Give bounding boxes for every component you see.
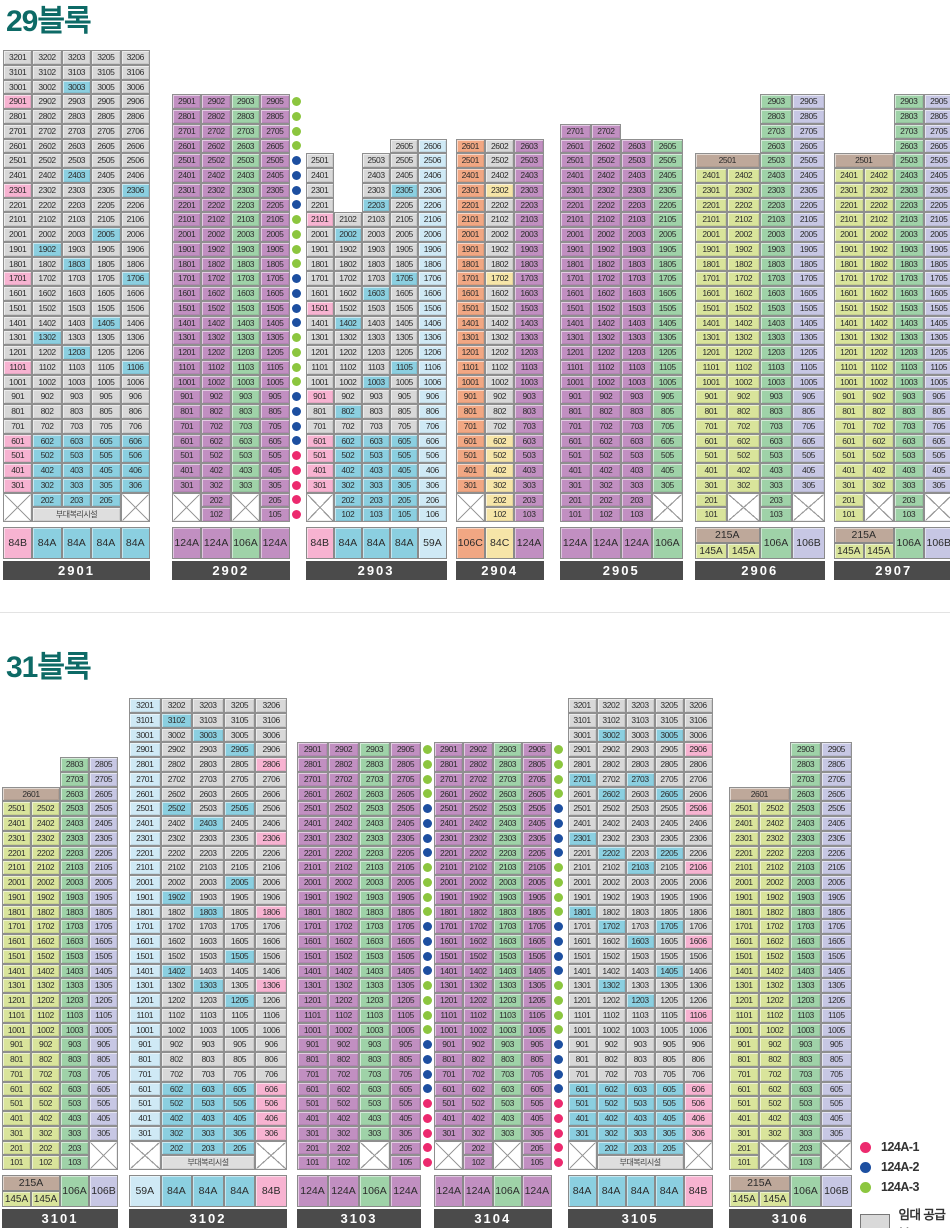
- unit-cell: 1302: [485, 330, 514, 345]
- unit-cell: 2601: [172, 139, 201, 154]
- unit-cell: 1606: [684, 934, 713, 949]
- unit-cell: 1903: [493, 890, 522, 905]
- unit-cell: 2302: [32, 183, 61, 198]
- unit-cell: 905: [260, 389, 289, 404]
- unit-cell: 803: [192, 1052, 224, 1067]
- unit-cell: 1705: [91, 271, 120, 286]
- unit-cell: 2803: [62, 109, 91, 124]
- unit-type-footer: 215A145A145A106A106B: [2, 1175, 118, 1207]
- unit-cell: 1202: [759, 993, 790, 1008]
- unit-cell: 2201: [434, 846, 463, 861]
- unit-cell: 1205: [91, 345, 120, 360]
- unit-cell: 2005: [821, 875, 852, 890]
- unit-variant-dot: [423, 1143, 432, 1152]
- unit-cell: 2003: [621, 227, 652, 242]
- unit-cell: 402: [32, 463, 61, 478]
- unit-cell: 1302: [727, 330, 760, 345]
- unit-cell: 805: [821, 1052, 852, 1067]
- unit-cell: 1102: [32, 360, 61, 375]
- unit-variant-dot: [423, 966, 432, 975]
- dot-cell: [421, 860, 434, 875]
- unit-cell: 2401: [695, 168, 728, 183]
- unit-cell: 603: [790, 1082, 821, 1097]
- unit-cell: 403: [514, 463, 543, 478]
- unit-cell: 2805: [655, 757, 684, 772]
- legend-item-124A-2: 124A-2: [860, 1160, 950, 1174]
- unit-cell: 2605: [652, 139, 683, 154]
- unit-cell: 1505: [91, 301, 120, 316]
- footer-type-cell: 84A: [626, 1175, 655, 1207]
- unit-cell: 805: [224, 1052, 256, 1067]
- unit-cell: 705: [655, 1067, 684, 1082]
- unit-cell: 1703: [231, 271, 260, 286]
- dot-cell: [290, 419, 303, 434]
- footer-type-cell: 124A: [390, 1175, 421, 1207]
- unit-variant-dot: [423, 819, 432, 828]
- unit-cell: 1101: [834, 360, 864, 375]
- unit-cell: 603: [62, 434, 91, 449]
- unit-cell: 1403: [62, 316, 91, 331]
- unit-cell: 2403: [493, 816, 522, 831]
- unit-cell: 901: [297, 1037, 328, 1052]
- unit-cell: 2405: [390, 816, 421, 831]
- unit-cell: 1001: [834, 375, 864, 390]
- unit-cell: 706: [418, 419, 446, 434]
- unit-cell: 701: [560, 419, 591, 434]
- unit-cell: 2305: [260, 183, 289, 198]
- unit-type-footer: 84B84A84A84A59A: [306, 527, 447, 559]
- unit-cell: 1802: [31, 905, 60, 920]
- unit-cell: 1105: [260, 360, 289, 375]
- building-2904: 2601250124012301220121012001190118011701…: [456, 139, 544, 581]
- unit-cell: 1101: [172, 360, 201, 375]
- unit-cell: 1606: [255, 934, 287, 949]
- unit-cell: 101: [2, 1155, 31, 1170]
- unit-cell: 1203: [621, 345, 652, 360]
- unit-variant-dot: [423, 922, 432, 931]
- unit-cell: 2102: [727, 212, 760, 227]
- unit-cell: 1203: [760, 345, 793, 360]
- unit-cell: 1305: [91, 330, 120, 345]
- unit-cell: 1003: [790, 1023, 821, 1038]
- unit-variant-dot: [423, 1099, 432, 1108]
- unit-cell: 803: [62, 404, 91, 419]
- unit-cell: 2603: [894, 139, 924, 154]
- unit-cell: 1406: [255, 964, 287, 979]
- dot-cell: [290, 124, 303, 139]
- unit-cell: 1703: [894, 271, 924, 286]
- unit-cell: 2601: [129, 787, 161, 802]
- unit-cell: 1403: [626, 964, 655, 979]
- unit-cell: 1602: [759, 934, 790, 949]
- unit-cell: 406: [255, 1111, 287, 1126]
- unit-cell: 2203: [62, 198, 91, 213]
- unit-cell: 503: [894, 448, 924, 463]
- unit-cell: 102: [463, 1155, 492, 1170]
- unit-cell: 2801: [297, 757, 328, 772]
- unit-cell: 2105: [655, 860, 684, 875]
- unit-cell: 1805: [390, 905, 421, 920]
- unit-cell: 1101: [3, 360, 32, 375]
- unit-cell: 1605: [821, 934, 852, 949]
- unit-cell: 1301: [3, 330, 32, 345]
- unit-cell: 1105: [792, 360, 825, 375]
- unit-cell: 1501: [2, 949, 31, 964]
- unit-cell: 603: [760, 434, 793, 449]
- footer-type-cell: 124A: [463, 1175, 492, 1207]
- unit-cell: 702: [597, 1067, 626, 1082]
- unit-cell: 2506: [418, 153, 446, 168]
- unit-variant-dot: [423, 907, 432, 916]
- unit-cell: 1701: [568, 919, 597, 934]
- unit-cell: 405: [390, 1111, 421, 1126]
- unit-cell: 2401: [306, 168, 334, 183]
- unit-variant-dot: [554, 804, 563, 813]
- unit-cell: 1103: [60, 1008, 89, 1023]
- unit-cell: 805: [260, 404, 289, 419]
- unit-cell: 2605: [89, 787, 118, 802]
- unit-cell: 1602: [864, 286, 894, 301]
- unit-cell: 1502: [597, 949, 626, 964]
- unit-cell: 1503: [60, 949, 89, 964]
- unit-variant-dot: [423, 1070, 432, 1079]
- building-label: 3104: [434, 1209, 552, 1228]
- unit-cell: 302: [864, 478, 894, 493]
- unit-cell: 302: [485, 478, 514, 493]
- unit-cell: 1102: [485, 360, 514, 375]
- unit-cell: 1103: [192, 1008, 224, 1023]
- unit-cell: 1802: [463, 905, 492, 920]
- unit-cell: 603: [192, 1082, 224, 1097]
- unit-cell: 1205: [652, 345, 683, 360]
- unit-cell: 2501: [560, 153, 591, 168]
- unit-cell: 1701: [3, 271, 32, 286]
- dot-cell: [552, 846, 565, 861]
- unit-cell: 1102: [201, 360, 230, 375]
- unit-cell: 1605: [91, 286, 120, 301]
- unit-cell: 2302: [463, 831, 492, 846]
- unit-cell: 502: [591, 448, 622, 463]
- unit-cell: 603: [362, 434, 390, 449]
- footer-type-cell: 106A: [760, 527, 793, 559]
- unit-cell: 2701: [297, 772, 328, 787]
- unit-cell: 3205: [91, 50, 120, 65]
- unit-cell: 1103: [514, 360, 543, 375]
- footer-type-cell: 215A: [729, 1175, 791, 1191]
- unit-cell: 2203: [60, 846, 89, 861]
- unit-cell: 902: [31, 1037, 60, 1052]
- unit-cell: 2203: [359, 846, 390, 861]
- unit-cell: 901: [434, 1037, 463, 1052]
- unit-cell: 902: [201, 389, 230, 404]
- unit-cell: 2102: [485, 212, 514, 227]
- unit-cell: 1202: [31, 993, 60, 1008]
- unit-cell: 2801: [3, 109, 32, 124]
- unit-cell: 1705: [260, 271, 289, 286]
- unit-cell: 2901: [434, 742, 463, 757]
- unit-cell: 1001: [560, 375, 591, 390]
- unit-cell: 802: [463, 1052, 492, 1067]
- unit-cell: 1501: [297, 949, 328, 964]
- unit-cell: 402: [334, 463, 362, 478]
- unit-cell: 1902: [759, 890, 790, 905]
- unit-cell: 502: [32, 448, 61, 463]
- unit-cell: 501: [172, 448, 201, 463]
- unit-cell: 2105: [260, 212, 289, 227]
- unit-cell: 2301: [729, 831, 760, 846]
- unit-cell: 101: [729, 1155, 760, 1170]
- unit-cell: 602: [328, 1082, 359, 1097]
- unit-cell: 403: [493, 1111, 522, 1126]
- unit-cell: 1603: [359, 934, 390, 949]
- unit-cell: 1301: [297, 978, 328, 993]
- unit-cell: 2305: [91, 183, 120, 198]
- unit-cell: 2001: [2, 875, 31, 890]
- footer-type-cell: 215A: [834, 527, 894, 543]
- unit-cell: 202: [463, 1141, 492, 1156]
- unit-cell: 2901: [568, 742, 597, 757]
- unit-cell: 1403: [514, 316, 543, 331]
- unit-cell: 2501: [297, 801, 328, 816]
- unit-cell: 503: [359, 1096, 390, 1111]
- unit-cell: 302: [334, 478, 362, 493]
- building-2902: 2901280127012601250124012301220121012001…: [172, 94, 303, 580]
- unit-cell: 2401: [434, 816, 463, 831]
- unit-variant-dot: [423, 981, 432, 990]
- unit-cell: 901: [2, 1037, 31, 1052]
- unit-cell: 2703: [60, 772, 89, 787]
- unit-cell: 1102: [759, 1008, 790, 1023]
- unit-cell: 1001: [456, 375, 485, 390]
- unit-cell: 1703: [62, 271, 91, 286]
- unit-cell: 1101: [729, 1008, 760, 1023]
- dot-cell: [290, 183, 303, 198]
- building-label: 3105: [568, 1209, 713, 1228]
- unit-cell: 1802: [334, 257, 362, 272]
- unit-cell: 1805: [91, 257, 120, 272]
- unit-cell: 1801: [3, 257, 32, 272]
- unit-variant-dot: [292, 141, 301, 150]
- unit-cell: 2102: [463, 860, 492, 875]
- unit-cell: 2003: [790, 875, 821, 890]
- unit-cell: 1002: [32, 375, 61, 390]
- unit-cell: 2302: [328, 831, 359, 846]
- unit-cell: 401: [306, 463, 334, 478]
- unit-cell: 902: [334, 389, 362, 404]
- unit-cell: 3203: [62, 50, 91, 65]
- unit-cell: 2703: [790, 772, 821, 787]
- unit-cell: 1602: [201, 286, 230, 301]
- unit-cell: 1803: [790, 905, 821, 920]
- unit-cell: 1302: [591, 330, 622, 345]
- unit-cell: 501: [434, 1096, 463, 1111]
- dot-cell: [421, 905, 434, 920]
- no-unit-x-cell: [652, 493, 683, 523]
- unit-cell: 1605: [655, 934, 684, 949]
- unit-cell: 701: [306, 419, 334, 434]
- unit-cell: 2805: [792, 109, 825, 124]
- unit-variant-dot: [554, 863, 563, 872]
- unit-variant-dot: [292, 186, 301, 195]
- no-unit-x-cell: [172, 493, 201, 523]
- unit-cell: 1201: [568, 993, 597, 1008]
- unit-cell: 1505: [924, 301, 950, 316]
- dot-cell: [552, 1141, 565, 1156]
- unit-cell: 803: [231, 404, 260, 419]
- unit-cell: 1503: [192, 949, 224, 964]
- unit-cell: 203: [192, 1141, 224, 1156]
- unit-cell: 501: [729, 1096, 760, 1111]
- unit-cell: 1206: [121, 345, 150, 360]
- unit-cell: 2001: [297, 875, 328, 890]
- dot-cell: [421, 1082, 434, 1097]
- unit-cell: 305: [260, 478, 289, 493]
- unit-cell: 601: [695, 434, 728, 449]
- building-grid: 2501240123012201210120011901180117011601…: [729, 742, 852, 1170]
- unit-cell: 2605: [522, 787, 551, 802]
- block-29-title: 29블록: [6, 0, 91, 40]
- unit-cell: 2001: [3, 227, 32, 242]
- unit-cell: 1505: [390, 301, 418, 316]
- unit-cell: 1501: [456, 301, 485, 316]
- unit-cell: 505: [390, 448, 418, 463]
- unit-cell: 1605: [924, 286, 950, 301]
- unit-cell: 3102: [161, 713, 193, 728]
- unit-cell: 2503: [62, 153, 91, 168]
- unit-cell: 2502: [597, 801, 626, 816]
- unit-cell: 1002: [727, 375, 760, 390]
- unit-cell: 1605: [652, 286, 683, 301]
- unit-cell: 2905: [91, 94, 120, 109]
- unit-cell: 1903: [514, 242, 543, 257]
- unit-cell: 2603: [493, 787, 522, 802]
- unit-cell: 305: [224, 1126, 256, 1141]
- unit-cell: 2405: [792, 168, 825, 183]
- unit-cell: 2001: [456, 227, 485, 242]
- unit-cell: 2305: [89, 831, 118, 846]
- unit-cell: 2701: [129, 772, 161, 787]
- unit-cell: 106: [418, 507, 446, 522]
- unit-cell: 1705: [390, 919, 421, 934]
- unit-cell: 2202: [31, 846, 60, 861]
- unit-cell: 1803: [231, 257, 260, 272]
- unit-type-footer: 84A84A84A84A84B: [568, 1175, 713, 1207]
- unit-cell: 1702: [334, 271, 362, 286]
- unit-cell: 701: [834, 419, 864, 434]
- unit-cell: 1601: [297, 934, 328, 949]
- unit-cell: 1105: [224, 1008, 256, 1023]
- unit-cell: 2303: [626, 831, 655, 846]
- unit-cell: 3202: [161, 698, 193, 713]
- unit-cell: 803: [359, 1052, 390, 1067]
- unit-cell: 1502: [31, 949, 60, 964]
- dot-cell: [421, 742, 434, 757]
- unit-cell: 2103: [760, 212, 793, 227]
- building-label: 2907: [834, 561, 950, 580]
- unit-cell: 1705: [89, 919, 118, 934]
- unit-cell: 2402: [328, 816, 359, 831]
- unit-cell: 903: [626, 1037, 655, 1052]
- unit-cell: 802: [591, 404, 622, 419]
- unit-cell: 2703: [493, 772, 522, 787]
- unit-cell: 1402: [485, 316, 514, 331]
- unit-cell: 502: [31, 1096, 60, 1111]
- unit-cell: 2603: [514, 139, 543, 154]
- unit-cell: 3101: [129, 713, 161, 728]
- unit-cell: 503: [192, 1096, 224, 1111]
- unit-cell: 1302: [201, 330, 230, 345]
- unit-cell: 601: [129, 1082, 161, 1097]
- unit-cell: 2406: [255, 816, 287, 831]
- unit-cell: 303: [359, 1126, 390, 1141]
- unit-cell: 2701: [172, 124, 201, 139]
- unit-cell: 2905: [260, 94, 289, 109]
- unit-cell: 605: [89, 1082, 118, 1097]
- unit-cell: 2302: [759, 831, 790, 846]
- unit-cell: 2302: [485, 183, 514, 198]
- unit-cell: 903: [60, 1037, 89, 1052]
- footer-type-cell: 145A: [727, 543, 760, 559]
- unit-cell: 601: [434, 1082, 463, 1097]
- unit-cell: 1501: [695, 301, 728, 316]
- unit-cell: 302: [759, 1126, 790, 1141]
- unit-cell: 3103: [62, 65, 91, 80]
- unit-cell: 903: [493, 1037, 522, 1052]
- dot-cell: [552, 1067, 565, 1082]
- unit-cell: 2401: [2, 816, 31, 831]
- dot-cell: [552, 905, 565, 920]
- unit-cell: 2303: [621, 183, 652, 198]
- unit-cell: 705: [522, 1067, 551, 1082]
- unit-cell: 901: [456, 389, 485, 404]
- unit-cell: 2105: [522, 860, 551, 875]
- footer-type-cell: 215A: [695, 527, 760, 543]
- unit-cell: 2303: [493, 831, 522, 846]
- unit-cell: 1603: [514, 286, 543, 301]
- unit-cell: 1201: [172, 345, 201, 360]
- unit-cell: 3002: [161, 728, 193, 743]
- unit-cell: 401: [568, 1111, 597, 1126]
- unit-cell: 2005: [924, 227, 950, 242]
- unit-cell: 2202: [463, 846, 492, 861]
- unit-cell: 503: [790, 1096, 821, 1111]
- unit-cell: 2402: [864, 168, 894, 183]
- unit-cell: 1405: [91, 316, 120, 331]
- unit-cell: 2001: [568, 875, 597, 890]
- unit-cell: 202: [32, 493, 61, 508]
- unit-cell: 1301: [434, 978, 463, 993]
- unit-cell: 506: [684, 1096, 713, 1111]
- unit-cell: 205: [522, 1141, 551, 1156]
- unit-cell: 1905: [821, 890, 852, 905]
- unit-variant-dot: [423, 996, 432, 1005]
- unit-cell: 1101: [434, 1008, 463, 1023]
- unit-cell: 2705: [89, 772, 118, 787]
- footer-type-cell: 124A: [591, 527, 622, 559]
- unit-cell: 2206: [255, 846, 287, 861]
- unit-cell: 306: [121, 478, 150, 493]
- unit-cell: 403: [60, 1111, 89, 1126]
- unit-cell: 1902: [31, 890, 60, 905]
- unit-cell: 2805: [390, 757, 421, 772]
- unit-cell: 301: [834, 478, 864, 493]
- unit-cell: 1001: [3, 375, 32, 390]
- unit-cell: 2501: [3, 153, 32, 168]
- unit-cell: 1305: [655, 978, 684, 993]
- unit-cell: 2803: [894, 109, 924, 124]
- unit-cell: 2505: [390, 801, 421, 816]
- dot-cell: [290, 286, 303, 301]
